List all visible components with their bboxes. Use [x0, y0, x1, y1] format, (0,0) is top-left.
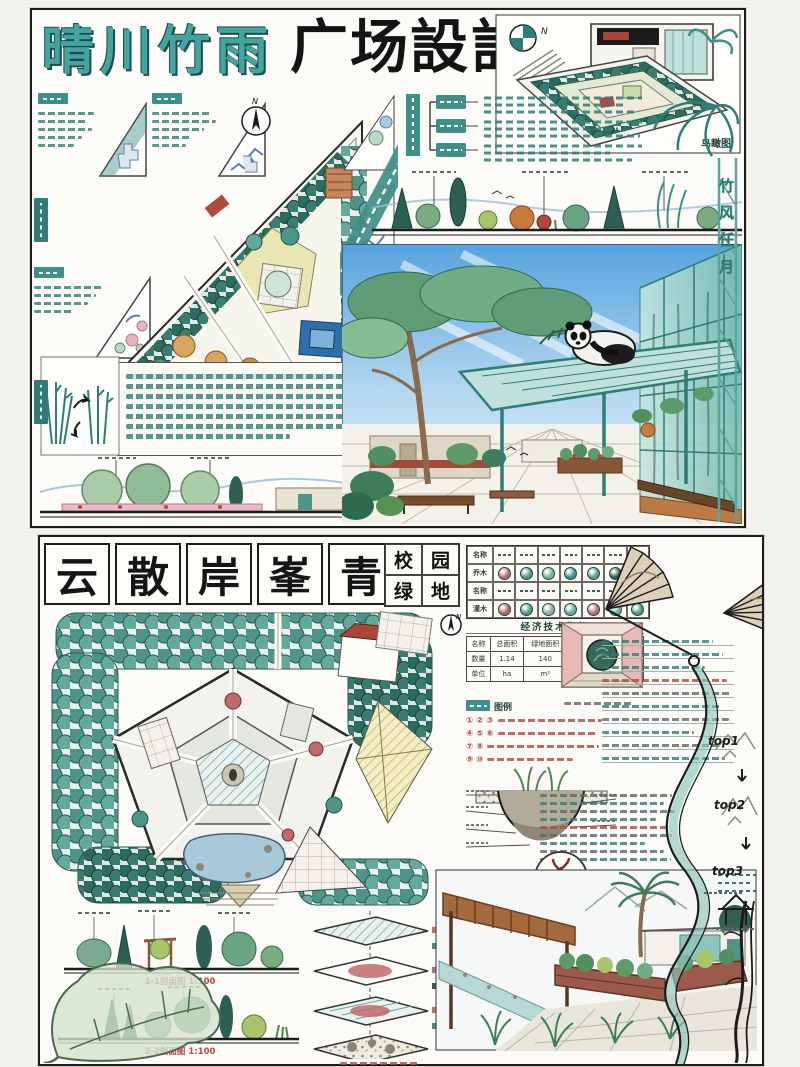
legend-row-label: 名称: [467, 582, 493, 600]
analysis-tag: [152, 93, 182, 104]
board-plaza-design: 晴川竹雨 广场設計 N 鸟瞰图: [30, 8, 746, 528]
border-seal-tag: [34, 380, 48, 424]
flowchart-node: [436, 143, 466, 157]
flowchart-node: [436, 119, 466, 133]
vertical-calligraphy: 竹风任月: [716, 178, 737, 478]
flowchart-node: [436, 95, 466, 109]
shrub-symbol: [609, 603, 622, 616]
board-campus-green: 云 散 岸 峯 青 校 园 绿 地 名称 乔木 名称 灌木: [38, 535, 764, 1066]
arrow-down-icon: [738, 769, 746, 781]
design-description: [117, 362, 369, 456]
legend-row-label: 名称: [467, 546, 493, 564]
title-char-box: 岸: [186, 543, 252, 605]
legend-tag: [466, 700, 490, 711]
shrub-symbol: [631, 603, 644, 616]
mountain-sketch: [722, 797, 757, 825]
title-char-box: 散: [115, 543, 181, 605]
tree-trunk-sketch: [716, 867, 760, 1063]
planting-section-elevation: [372, 164, 742, 248]
legend-row-label: 灌木: [467, 600, 493, 618]
shrub-symbol: [587, 603, 600, 616]
shrub-symbol: [542, 603, 555, 616]
pond: [184, 834, 285, 883]
title-char-box: 云: [44, 543, 110, 605]
svg-text:N: N: [541, 27, 548, 37]
border-seal-tag: [34, 198, 48, 242]
board2-title: 云 散 岸 峯 青: [44, 543, 394, 605]
plant-legend-table: 名称 乔木 名称 灌木: [466, 545, 650, 619]
shrub-symbol: [498, 603, 511, 616]
design-notes-column: [602, 633, 734, 770]
board1-title-teal: 晴川竹雨: [42, 26, 274, 78]
main-perspective: [342, 244, 742, 524]
top2-label: top2: [714, 798, 745, 812]
legend-row-label: 乔木: [467, 564, 493, 582]
tree-symbol: [498, 567, 511, 580]
analysis-tag: [38, 93, 68, 104]
campus-master-plan: [48, 609, 440, 911]
arrow-down-icon: [742, 837, 750, 849]
title-char-box: 峯: [257, 543, 323, 605]
palm-leaf-sketch: [646, 86, 740, 162]
tree-symbol: [520, 567, 533, 580]
exploded-layer-diagram: [306, 909, 456, 1059]
svg-text:N: N: [252, 97, 258, 106]
subtitle-char: 园: [422, 544, 459, 575]
board1-title-black: 广场設計: [290, 18, 530, 76]
layer-diagram-caption: [340, 1062, 420, 1065]
subtitle-char: 地: [422, 575, 459, 606]
board2-subtitle: 校 园 绿 地: [384, 543, 460, 607]
subtitle-char: 绿: [385, 575, 422, 606]
bamboo-concept-sketch: [40, 356, 120, 456]
shrub-symbol: [564, 603, 577, 616]
tree-symbol: [564, 567, 577, 580]
handwritten-paragraph: [484, 98, 642, 160]
pyramid-skylight: [220, 885, 260, 907]
tree-symbol: [542, 567, 555, 580]
tree-symbol: [609, 567, 622, 580]
analysis-tag: [34, 267, 64, 278]
svg-text:N: N: [456, 613, 462, 621]
legend-label: 图例: [494, 703, 512, 713]
tree-symbol: [631, 567, 644, 580]
subtitle-char: 校: [385, 544, 422, 575]
leaf-sketch: [40, 945, 245, 1063]
compass-icon: N: [438, 611, 464, 637]
tree-symbol: [587, 567, 600, 580]
shrub-symbol: [520, 603, 533, 616]
garden-perspective: [435, 869, 757, 1051]
entry-elevation: [40, 454, 372, 522]
design-flowchart: [404, 88, 646, 166]
